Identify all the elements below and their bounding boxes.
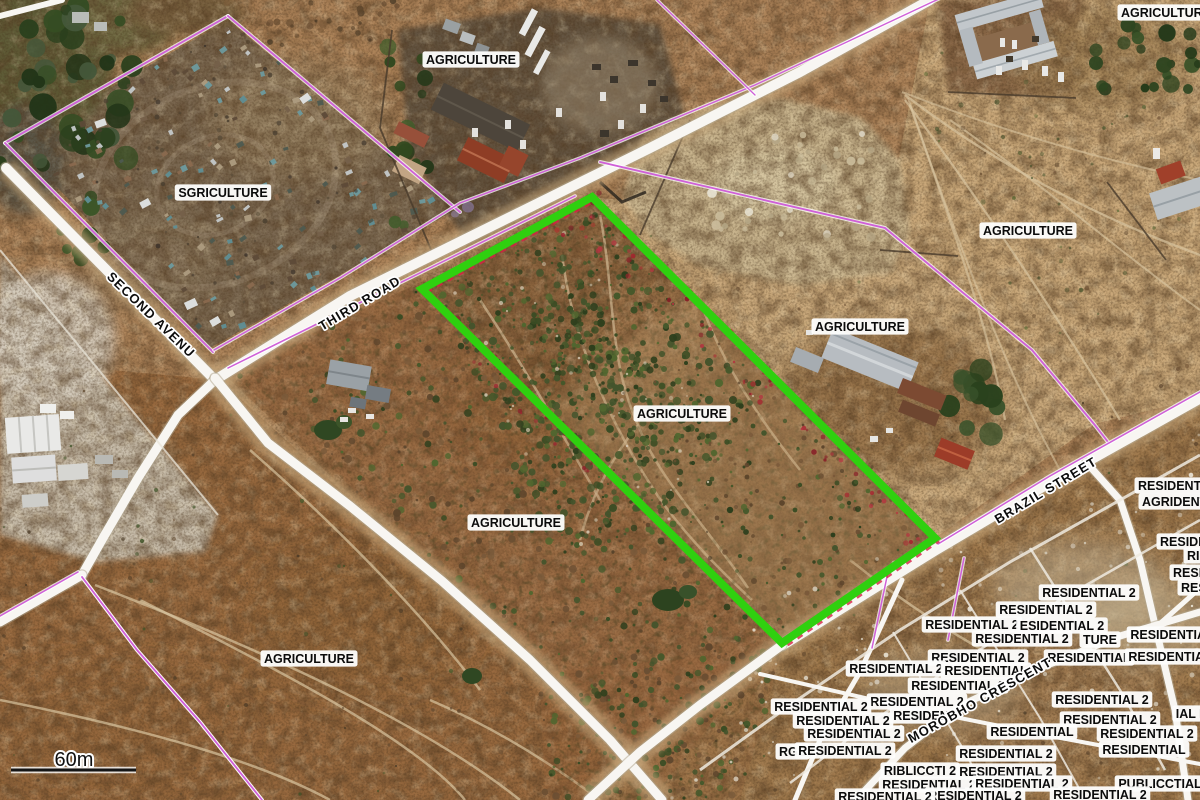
svg-text:RESIDENTIAL 2: RESIDENTIAL 2 [1053, 788, 1147, 800]
svg-text:RESIDENTIAL 2: RESIDENTIAL 2 [1063, 713, 1157, 727]
svg-text:TURE: TURE [1083, 633, 1117, 647]
svg-text:RESIDENTIAL 2: RESIDENTIAL 2 [807, 727, 901, 741]
svg-text:AGRICULTURE: AGRICULTURE [1121, 6, 1200, 20]
svg-text:RESIDENTIAL: RESIDENTIAL [1130, 628, 1200, 642]
svg-text:RESIDENTIAL: RESIDENTIAL [1047, 651, 1131, 665]
svg-text:RESIDENTIAL 2: RESIDENTIAL 2 [1055, 693, 1149, 707]
svg-text:RESIDENTIAL 2: RESIDENTIAL 2 [975, 632, 1069, 646]
svg-text:RESIDENTIAL 2: RESIDENTIAL 2 [925, 618, 1019, 632]
svg-text:AGRICULTURE: AGRICULTURE [426, 53, 516, 67]
svg-text:RESIDENTIAL 2: RESIDENTIAL 2 [928, 789, 1022, 800]
svg-text:RESIDENTIAL: RESIDENTIAL [990, 725, 1074, 739]
svg-text:AGRICULTURE: AGRICULTURE [983, 224, 1073, 238]
svg-text:RI: RI [1187, 549, 1200, 563]
svg-text:AGRICULTURE: AGRICULTURE [815, 320, 905, 334]
svg-text:RES: RES [1181, 581, 1200, 595]
svg-text:AGRICULTURE: AGRICULTURE [637, 407, 727, 421]
svg-text:RESIDENTIAL: RESIDENTIAL [1138, 479, 1200, 493]
svg-text:RESIDENTIAL 2: RESIDENTIAL 2 [870, 695, 964, 709]
svg-text:AGRICULTURE: AGRICULTURE [264, 652, 354, 666]
svg-text:RESIDENTIAL: RESIDENTIAL [1128, 650, 1200, 664]
svg-text:RESIDENTIAL 2: RESIDENTIAL 2 [838, 790, 932, 800]
svg-text:RESIDE: RESIDE [1173, 566, 1200, 580]
svg-text:RESIDENTIAL 2: RESIDENTIAL 2 [849, 662, 943, 676]
svg-text:RESIDENTIAL 2: RESIDENTIAL 2 [999, 603, 1093, 617]
svg-text:RESIDE: RESIDE [1160, 535, 1200, 549]
svg-text:RESIDENTIAL 2: RESIDENTIAL 2 [1042, 586, 1136, 600]
svg-text:RESIDENTIAL 2: RESIDENTIAL 2 [798, 744, 892, 758]
svg-text:RIBLICCTI 2: RIBLICCTI 2 [884, 764, 956, 778]
svg-text:RESIDENTIAL 2: RESIDENTIAL 2 [1100, 727, 1194, 741]
svg-text:SGRICULTURE: SGRICULTURE [178, 186, 267, 200]
svg-text:AGRICULTURE: AGRICULTURE [471, 516, 561, 530]
svg-text:AGRIDENTL: AGRIDENTL [1142, 495, 1200, 509]
svg-text:RESIDENTIAL 2: RESIDENTIAL 2 [959, 747, 1053, 761]
svg-text:60m: 60m [55, 749, 94, 771]
svg-text:RESIDENTIAL 2: RESIDENTIAL 2 [774, 700, 868, 714]
svg-text:RESIDENTIAL: RESIDENTIAL [1102, 743, 1186, 757]
svg-text:IAL R: IAL R [1176, 707, 1200, 721]
